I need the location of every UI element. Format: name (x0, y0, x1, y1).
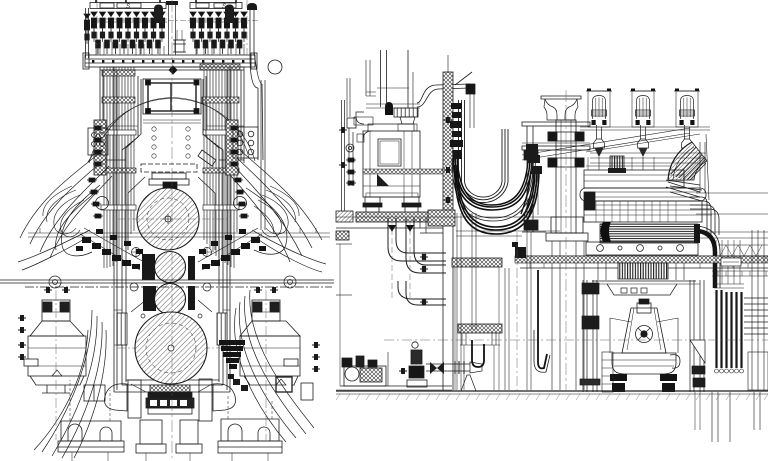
svg-text:S: S (126, 4, 130, 10)
